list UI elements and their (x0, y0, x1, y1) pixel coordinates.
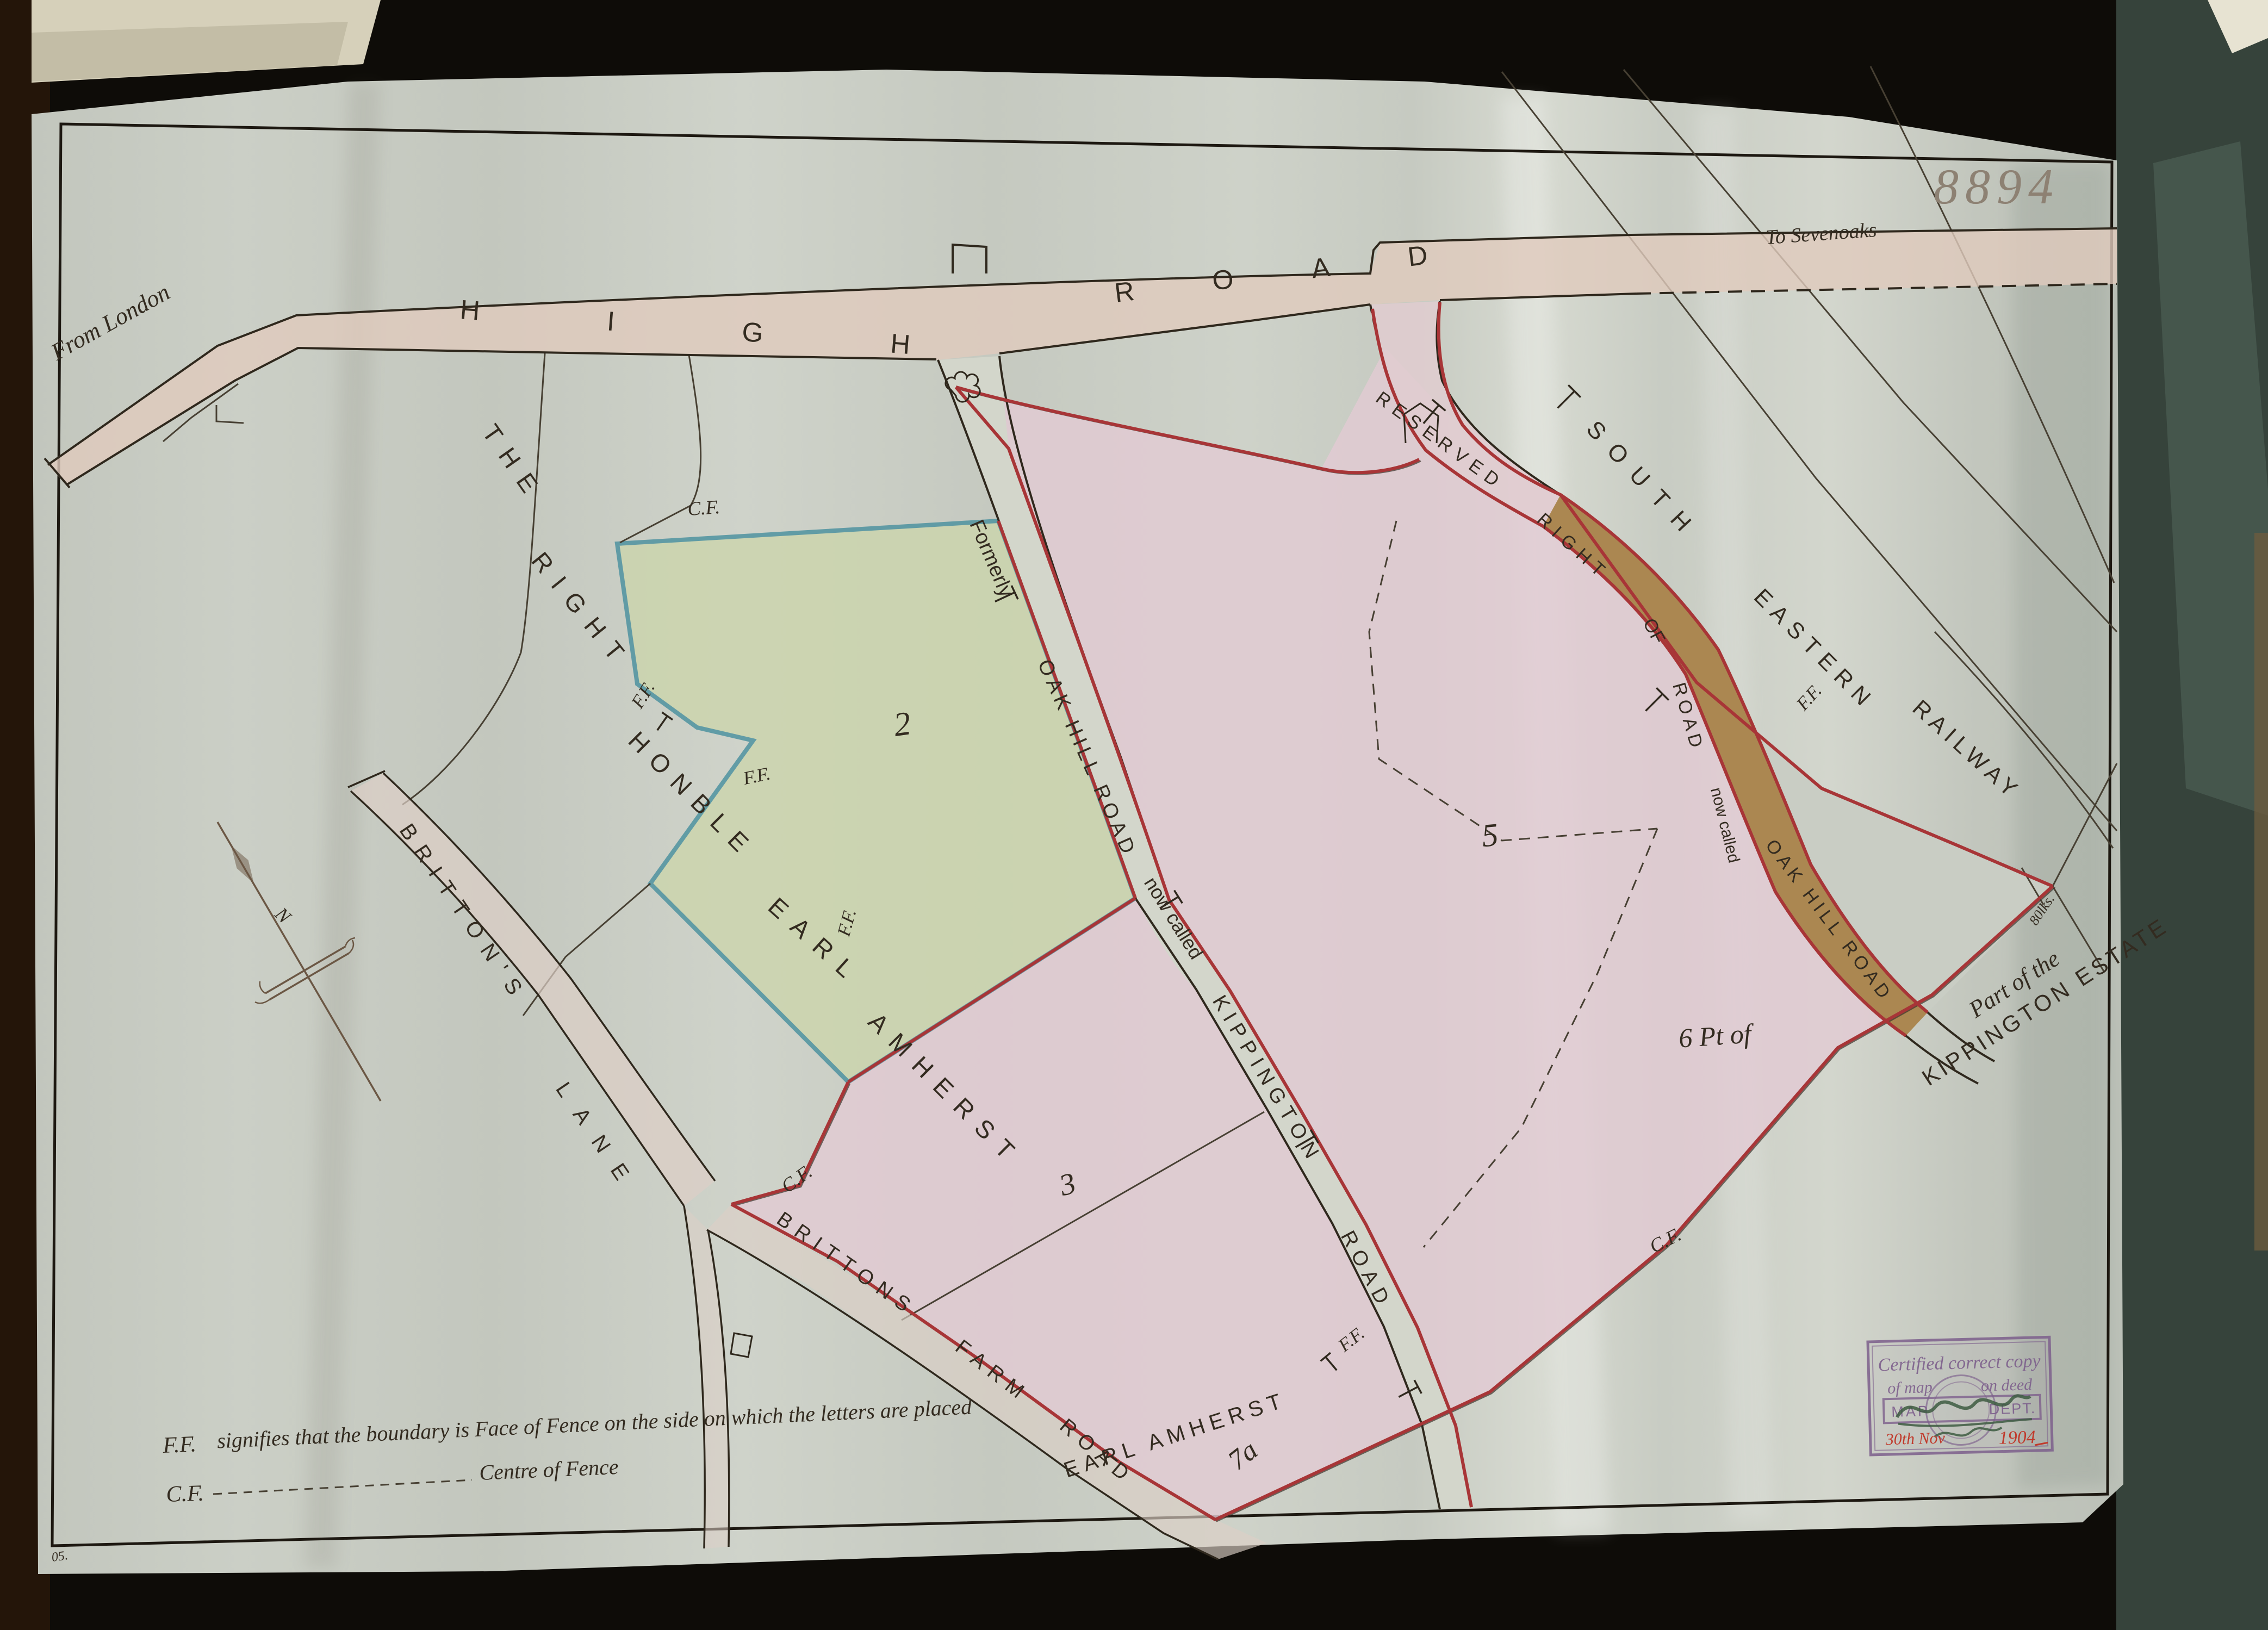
parcel-number-6: 6 Pt of (1677, 1018, 1755, 1054)
map-canvas: N 8894 To Sevenoaks From London HIGH ROA… (0, 0, 2268, 1630)
page-edge-right (2254, 533, 2268, 1251)
stamp-line1: Certified correct copy (1878, 1351, 2041, 1376)
photograph-of-deed-map: N 8894 To Sevenoaks From London HIGH ROA… (0, 0, 2268, 1630)
cf-mark: C.F. (687, 496, 720, 520)
legend-ff-abbr: F.F. (161, 1432, 197, 1458)
stamp-of-map: of map (1887, 1378, 1933, 1397)
sheet-number: 8894 (1934, 159, 2060, 214)
certification-stamp: Certified correct copy of map on deed MA… (1868, 1337, 2052, 1455)
legend-cf-abbr: C.F. (166, 1481, 204, 1507)
stamp-date-day: 30th Nov (1885, 1429, 1946, 1448)
parcel-number-5: 5 (1480, 817, 1500, 854)
corner-note: 05. (51, 1548, 69, 1565)
stamp-date-year: 1904 (1998, 1427, 2036, 1448)
translucent-right-band (2012, 163, 2110, 1490)
stamp-on-deed: on deed (1981, 1376, 2033, 1395)
